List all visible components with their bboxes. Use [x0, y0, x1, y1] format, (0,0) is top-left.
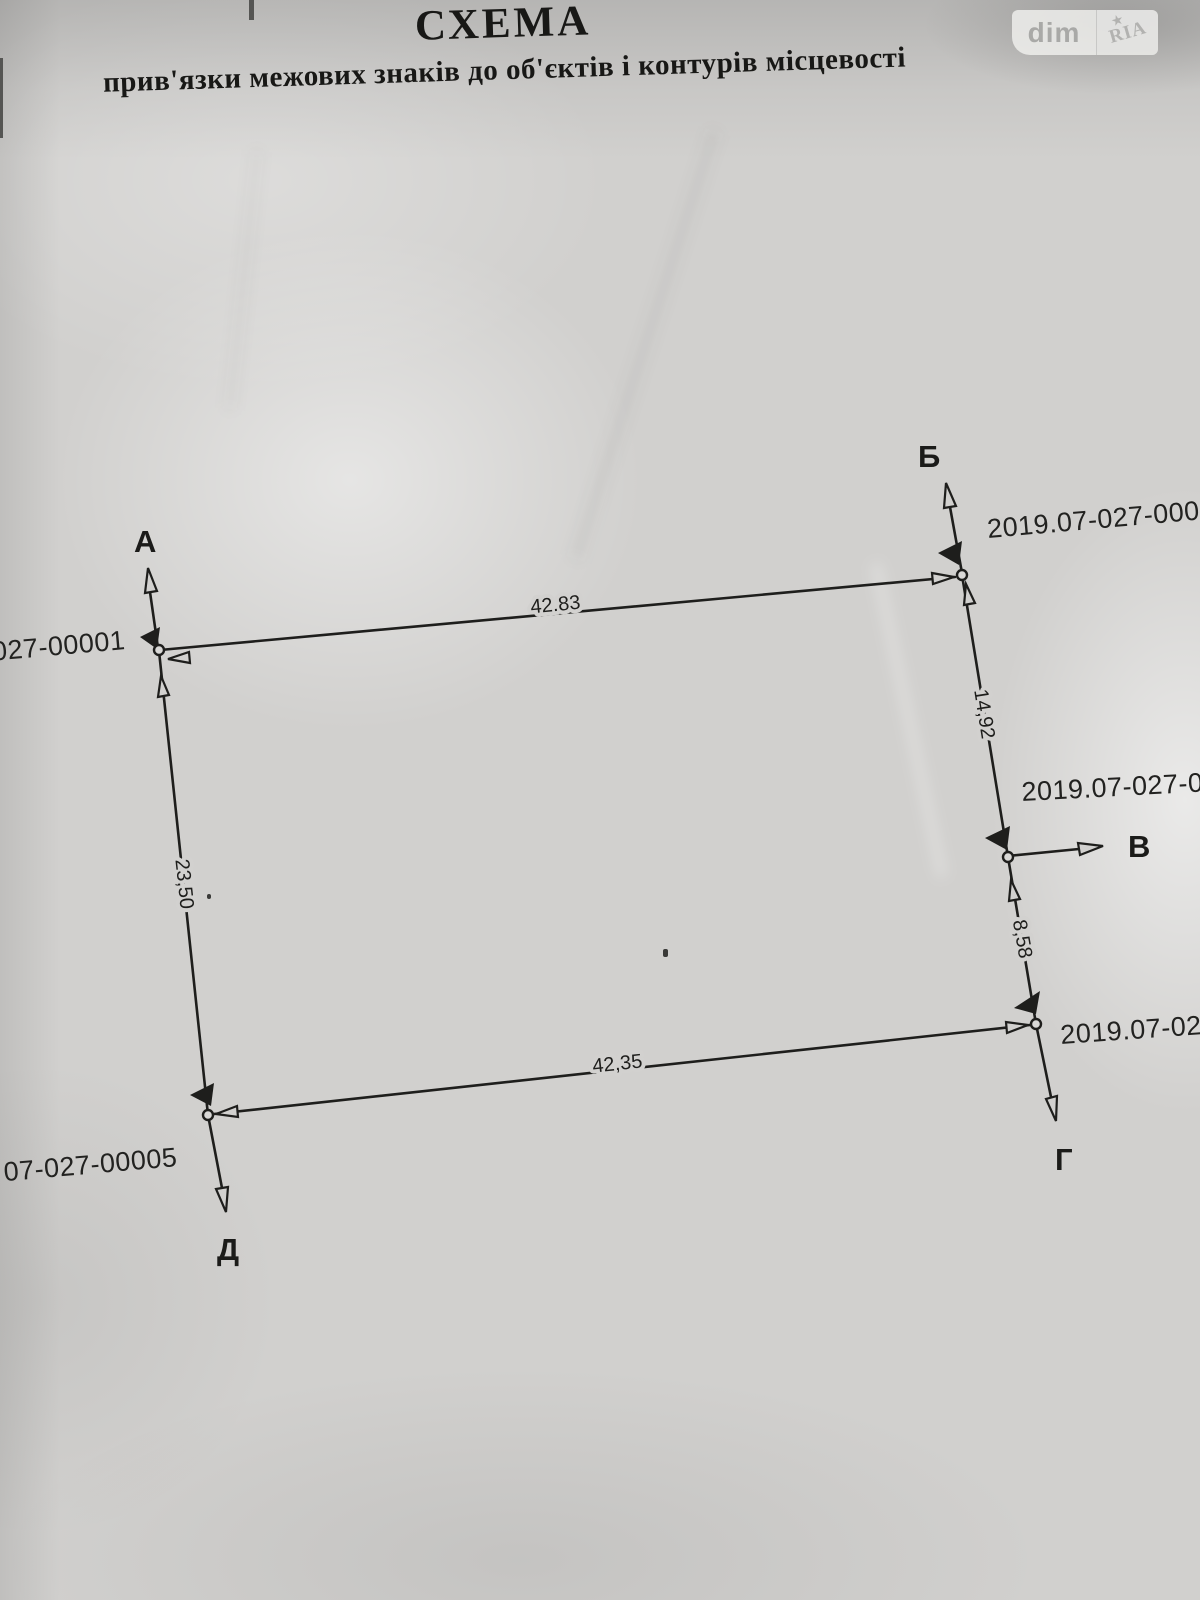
cadastral-label-bottom-left: 07-027-00005 — [2, 1142, 178, 1187]
cadastral-label-right-middle: 2019.07-027-00 — [1021, 767, 1200, 807]
ray-to-D — [208, 1115, 222, 1188]
arrowhead-top-right — [932, 573, 954, 584]
corner-point-BR — [1031, 1019, 1041, 1029]
corner-point-D — [203, 1110, 213, 1120]
point-label-V: В — [1128, 829, 1150, 864]
boundary-marker-BR — [1014, 991, 1040, 1014]
survey-diagram: А Б В Г Д 027-00001 2019.07-027-0000 201… — [0, 0, 1200, 1600]
arrowhead-V — [1078, 843, 1103, 855]
arrowhead-B — [944, 483, 956, 508]
boundary-marker-D — [190, 1083, 214, 1106]
corner-point-V — [1003, 852, 1013, 862]
boundary-marker-V — [985, 826, 1010, 850]
boundary-marker-B — [938, 541, 962, 565]
corner-point-A — [154, 645, 164, 655]
arrowhead-858-up — [1009, 880, 1020, 901]
arrowhead-top-left — [168, 652, 190, 663]
point-label-G: Г — [1055, 1142, 1073, 1177]
ray-to-G — [1036, 1024, 1051, 1097]
arrowhead-D — [216, 1187, 228, 1212]
arrowhead-bottom-left — [216, 1106, 238, 1117]
point-label-A: А — [134, 524, 156, 559]
arrowhead-G — [1046, 1096, 1057, 1121]
arrowhead-2350-up — [158, 676, 169, 697]
cadastral-label-right-bottom: 2019.07-02 — [1059, 1010, 1200, 1050]
cadastral-label-top-right: 2019.07-027-0000 — [986, 494, 1200, 544]
dimension-top: 42.83 — [529, 592, 581, 619]
dimension-left: 23,50 — [170, 858, 197, 910]
point-label-B: Б — [918, 439, 940, 474]
arrowhead-A — [145, 568, 157, 593]
arrowhead-1492-up — [964, 584, 975, 605]
cadastral-label-left-top: 027-00001 — [0, 625, 127, 667]
corner-point-B — [957, 570, 967, 580]
ray-to-V — [1008, 849, 1079, 856]
point-label-D: Д — [217, 1232, 239, 1267]
dimension-bottom: 42,35 — [591, 1050, 643, 1077]
dimension-right-lower: 8,58 — [1008, 918, 1036, 960]
arrowhead-bottom-right — [1006, 1022, 1028, 1033]
dimension-right-upper: 14,92 — [969, 688, 999, 741]
